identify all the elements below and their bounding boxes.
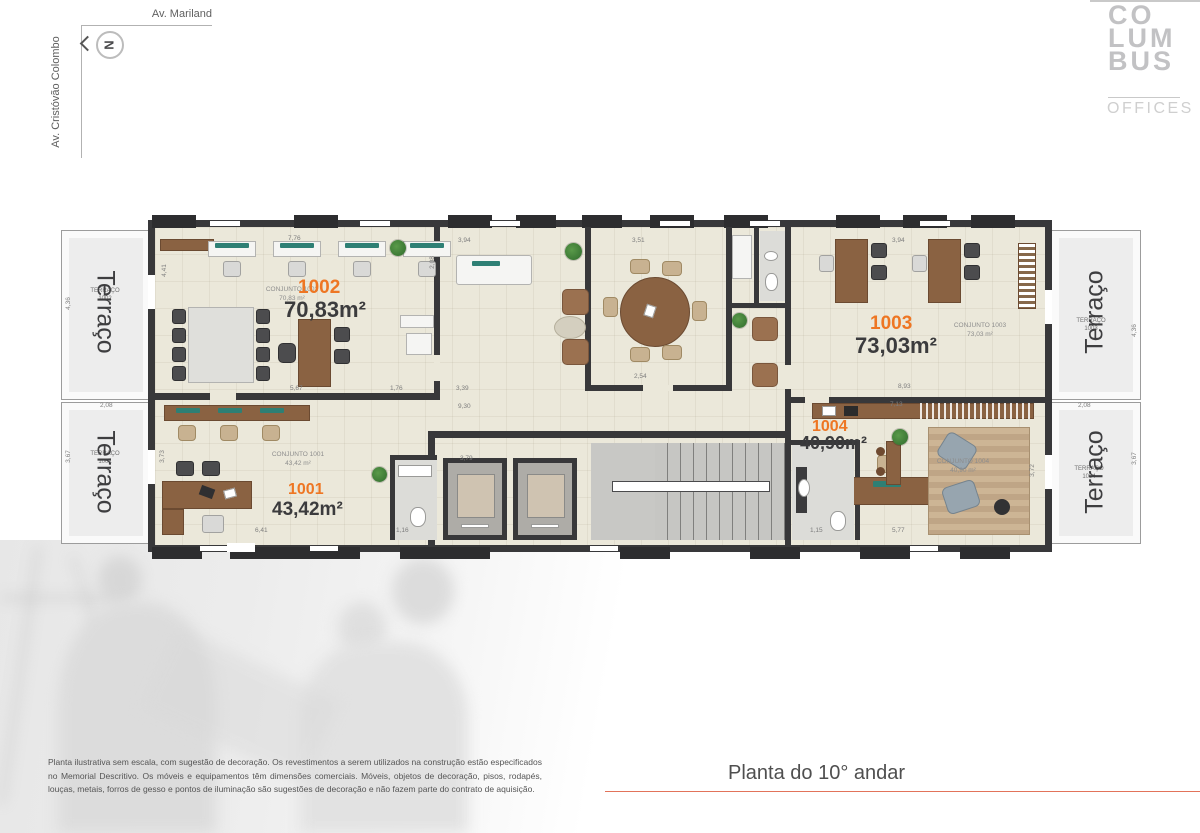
- guest-chair: [964, 265, 980, 280]
- chair: [256, 328, 270, 343]
- pilaster: [620, 547, 670, 559]
- door-opening: [434, 355, 440, 381]
- credenza: [160, 239, 214, 251]
- dim-label: 7,13: [890, 401, 903, 408]
- photo-window-frame: [0, 596, 120, 600]
- terrace-big-label-1002: Terraço: [91, 270, 120, 353]
- dim-label: 8,93: [898, 383, 911, 390]
- task-chair: [288, 261, 306, 277]
- dim-label: 4,36: [65, 297, 72, 310]
- terrace-big-label-1001: Terraço: [91, 430, 120, 513]
- chair: [172, 366, 186, 381]
- sink-icon: [822, 406, 836, 416]
- meeting-chair: [662, 345, 682, 360]
- dim-label: 2,08: [1078, 402, 1091, 409]
- guest-chair: [871, 265, 887, 280]
- partition-wall: [754, 227, 759, 303]
- dim-label: 3,79: [460, 455, 473, 462]
- terrace-big-label-1003: Terraço: [1081, 270, 1110, 353]
- executive-desk: [835, 239, 868, 303]
- meeting-chair: [603, 297, 618, 317]
- chair: [256, 309, 270, 324]
- sink-icon: [798, 479, 810, 497]
- core-wall: [428, 431, 787, 438]
- door-opening: [785, 365, 791, 389]
- plant-icon: [390, 240, 406, 256]
- window-gap: [210, 221, 240, 226]
- monitor-icon: [218, 408, 242, 413]
- round-meeting-table: [620, 277, 690, 347]
- task-chair: [262, 425, 280, 441]
- conjunto-area: 43,42 m²: [285, 460, 311, 467]
- reception-counter-sign: [472, 261, 500, 266]
- monitor-icon: [215, 243, 249, 248]
- compass-arrow-icon: [80, 36, 96, 52]
- plant-icon: [892, 429, 908, 445]
- cabinet: [400, 315, 434, 328]
- elevator-door: [461, 524, 489, 528]
- guest-chair: [964, 243, 980, 258]
- conjunto-label-1003: CONJUNTO 1003 73,03 m²: [938, 321, 1022, 340]
- dim-label: 6,41: [255, 527, 268, 534]
- floor-plan: CONJUNTO 1002 70,83 m² 1002 70,83m² CONJ…: [60, 215, 1140, 560]
- dim-label: 3,72: [1029, 464, 1036, 477]
- monitor-icon: [345, 243, 379, 248]
- dim-label: 3,67: [1131, 452, 1138, 465]
- chair: [172, 328, 186, 343]
- task-chair: [223, 261, 241, 277]
- reception-desk: [456, 255, 532, 285]
- terrace-door: [1045, 455, 1052, 489]
- window-gap: [310, 546, 338, 551]
- dim-label: 3,94: [892, 237, 905, 244]
- task-chair: [353, 261, 371, 277]
- conjunto-area: 40,90 m²: [950, 467, 976, 474]
- dim-label: 4,41: [161, 264, 168, 277]
- dim-label: 3,51: [632, 237, 645, 244]
- dim-label: 9,30: [458, 403, 471, 410]
- logo-subtitle: OFFICES: [1107, 100, 1194, 118]
- dim-label: 2,08: [100, 402, 113, 409]
- dim-label: 2,08: [429, 256, 436, 269]
- dim-label: 5,77: [892, 527, 905, 534]
- unit-area-1003: 73,03m²: [855, 333, 937, 359]
- compass-icon: N: [96, 31, 124, 59]
- dim-label: 4,36: [1131, 324, 1138, 337]
- armchair: [752, 317, 778, 341]
- executive-chair: [202, 515, 224, 533]
- executive-chair: [819, 255, 834, 272]
- street-line-top: [82, 25, 212, 26]
- dim-label: 1,16: [396, 527, 409, 534]
- pilaster: [152, 215, 196, 228]
- unit-area-1001: 43,42m²: [272, 499, 343, 521]
- terrace-door: [148, 450, 155, 484]
- chair: [256, 347, 270, 362]
- dim-label: 1,15: [810, 527, 823, 534]
- desk-return: [162, 509, 184, 535]
- monitor-icon: [176, 408, 200, 413]
- slatted-screen: [920, 403, 1034, 419]
- conjunto-area: 73,03 m²: [967, 331, 993, 338]
- window-gap: [490, 221, 520, 226]
- partition-wall: [155, 393, 440, 400]
- door-opening: [643, 385, 673, 391]
- disclaimer-text: Planta ilustrativa sem escala, com suges…: [48, 756, 542, 797]
- dim-label: 3,73: [159, 450, 166, 463]
- pilaster: [448, 215, 492, 228]
- armchair: [562, 289, 589, 315]
- guest-chair: [176, 461, 194, 476]
- toilet-icon: [410, 507, 426, 527]
- elevator-cab: [457, 474, 495, 518]
- plant-icon: [565, 243, 582, 260]
- guest-chair: [871, 243, 887, 258]
- toilet-icon: [765, 273, 778, 291]
- entry-door: [227, 543, 255, 552]
- cot: [732, 235, 752, 279]
- dim-label: 7,76: [288, 235, 301, 242]
- photo-person-silhouette: [300, 642, 468, 833]
- side-table: [994, 499, 1010, 515]
- window-gap: [660, 221, 690, 226]
- monitor-icon: [260, 408, 284, 413]
- executive-desk: [928, 239, 961, 303]
- unit-area-1004: 40,90m²: [800, 433, 867, 454]
- street-label-mariland: Av. Mariland: [120, 8, 212, 20]
- conjunto-name: CONJUNTO 1003: [954, 322, 1006, 329]
- window-gap: [200, 546, 228, 551]
- street-label-cristovao-colombo: Av. Cristóvão Colombo: [50, 36, 62, 147]
- elevator-door: [531, 524, 559, 528]
- armchair: [752, 363, 778, 387]
- pilaster: [836, 215, 880, 228]
- compass-north-letter: N: [98, 40, 122, 49]
- stool: [876, 447, 885, 456]
- dim-label: 3,39: [456, 385, 469, 392]
- side-table: [406, 333, 432, 355]
- window-gap: [750, 221, 780, 226]
- sink-icon: [764, 251, 778, 261]
- meeting-chair: [630, 259, 650, 274]
- dim-label: 5,67: [290, 385, 303, 392]
- vanity-sink: [398, 465, 432, 477]
- logo-mid-rule: [1108, 97, 1180, 98]
- photo-person-silhouette: [392, 558, 454, 624]
- conjunto-name: CONJUNTO 1004: [937, 458, 989, 465]
- meeting-chair: [662, 261, 682, 276]
- pilaster: [750, 547, 800, 559]
- task-chair: [220, 425, 238, 441]
- dim-label: 3,67: [65, 450, 72, 463]
- round-rug: [554, 316, 586, 339]
- guest-chair: [202, 461, 220, 476]
- cooktop-icon: [844, 406, 858, 416]
- toilet-icon: [830, 511, 846, 531]
- chair: [256, 366, 270, 381]
- unit-area-1002: 70,83m²: [284, 297, 366, 323]
- dim-label: 3,94: [458, 237, 471, 244]
- photo-person-silhouette: [98, 556, 142, 604]
- page-title: Planta do 10° andar: [728, 762, 905, 785]
- terrace-door: [1045, 290, 1052, 324]
- pilaster: [152, 547, 202, 559]
- pilaster: [860, 547, 910, 559]
- guest-chair: [334, 349, 350, 364]
- title-underline: [605, 791, 1200, 792]
- armchair: [562, 339, 589, 365]
- logo-word-bus: BUS: [1108, 50, 1174, 73]
- dim-label: 2,54: [634, 373, 647, 380]
- unit-number-1003: 1003: [870, 313, 912, 335]
- executive-chair: [912, 255, 927, 272]
- meeting-chair: [630, 347, 650, 362]
- terrace-door: [148, 275, 155, 309]
- door-opening: [210, 393, 236, 400]
- plant-icon: [732, 313, 747, 328]
- chair: [172, 309, 186, 324]
- task-chair: [178, 425, 196, 441]
- window-gap: [360, 221, 390, 226]
- executive-chair: [278, 343, 296, 363]
- window-gap: [590, 546, 618, 551]
- meeting-chair: [692, 301, 707, 321]
- pilaster: [294, 215, 338, 228]
- terrace-big-label-1004: Terraço: [1081, 430, 1110, 513]
- partition-wall: [728, 303, 785, 308]
- stool: [876, 467, 885, 476]
- bar-table: [886, 441, 901, 485]
- stair-handrail: [612, 481, 770, 492]
- chair: [172, 347, 186, 362]
- elevator-cab: [527, 474, 565, 518]
- unit-number-1002: 1002: [298, 277, 340, 299]
- pilaster: [400, 547, 490, 559]
- pilaster: [960, 547, 1010, 559]
- plant-icon: [372, 467, 387, 482]
- monitor-icon: [410, 243, 444, 248]
- conjunto-label-1001: CONJUNTO 1001 43,42 m²: [256, 450, 340, 469]
- guest-chair: [334, 327, 350, 342]
- window-gap: [910, 546, 938, 551]
- louver-shelf: [1018, 243, 1036, 309]
- unit-number-1001: 1001: [288, 481, 324, 499]
- photo-window-frame: [0, 546, 40, 804]
- window-gap: [920, 221, 950, 226]
- conjunto-name: CONJUNTO 1001: [272, 451, 324, 458]
- monitor-icon: [280, 243, 314, 248]
- pilaster: [971, 215, 1015, 228]
- pilaster: [516, 215, 556, 228]
- glass-meeting-table: [188, 307, 254, 383]
- conjunto-label-1004: CONJUNTO 1004 40,90 m²: [918, 457, 1008, 476]
- executive-desk: [298, 319, 331, 387]
- dim-label: 1,76: [390, 385, 403, 392]
